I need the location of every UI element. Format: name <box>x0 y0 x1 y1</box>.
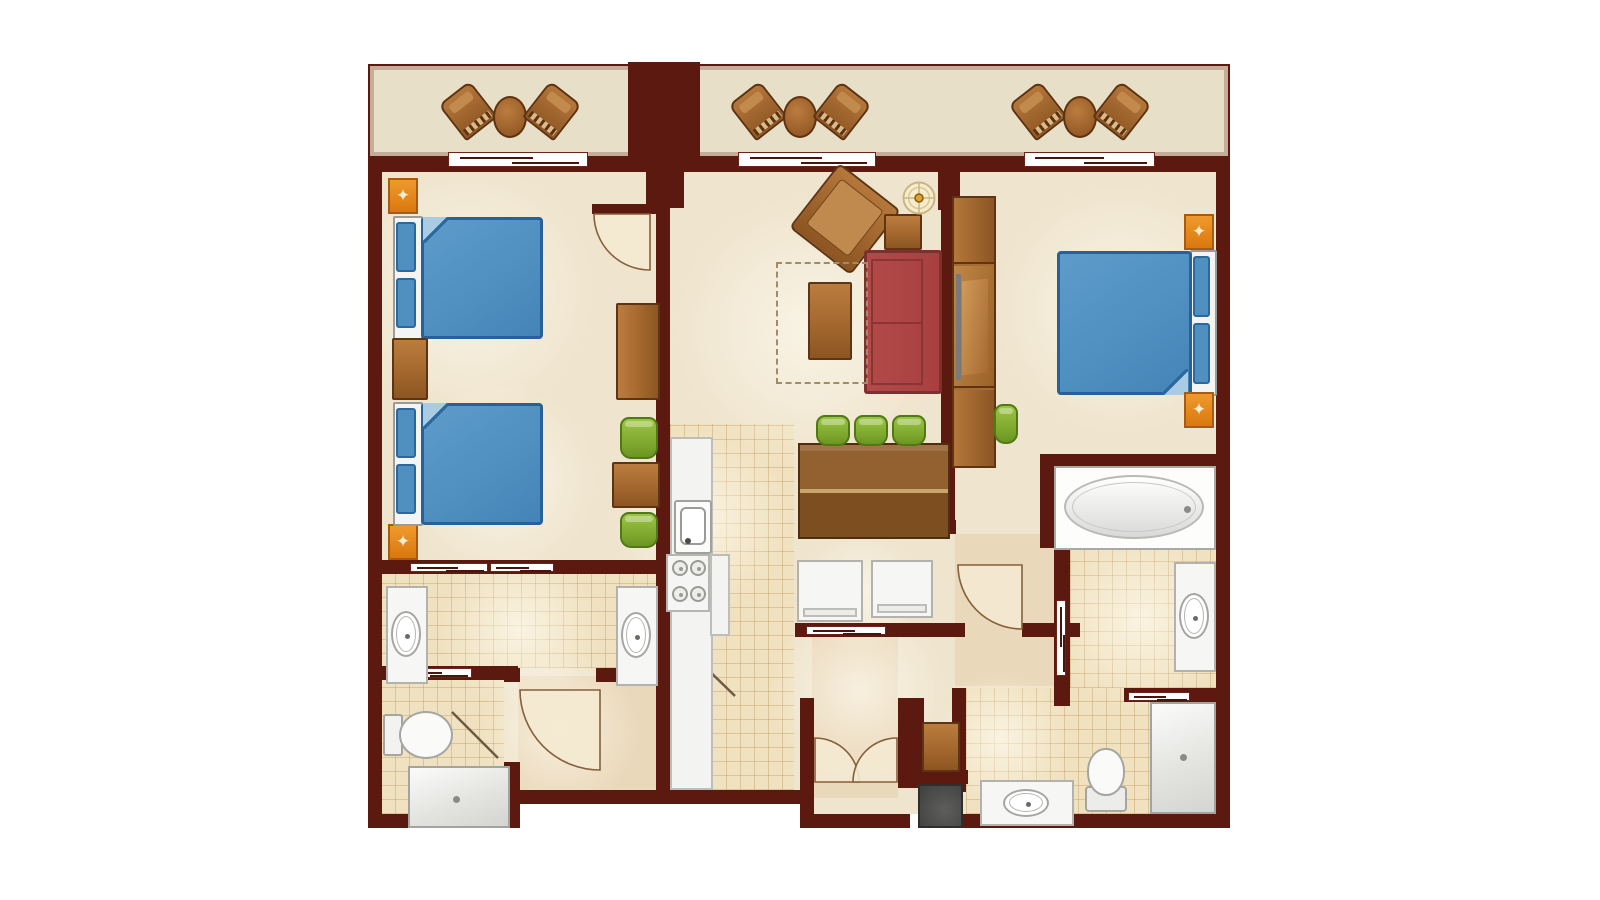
bedroom1-door-swing <box>594 214 650 270</box>
utility-closet <box>918 784 963 828</box>
cafe-table <box>612 462 660 508</box>
sink-drain <box>405 634 410 639</box>
bath1-toilet <box>383 710 455 760</box>
kitchen-sink <box>674 500 712 554</box>
tub-inner-ring <box>1072 482 1196 532</box>
toilet-bowl <box>399 711 453 759</box>
stove-burner <box>672 586 688 602</box>
compass-star-icon: ✦ <box>390 180 416 212</box>
bed-pillow <box>396 408 416 458</box>
compass-star-icon: ✦ <box>1186 216 1212 248</box>
sink-drain <box>635 635 640 640</box>
bed-pillow <box>1193 323 1210 384</box>
dining-chair-1 <box>816 415 850 446</box>
bed-pillow <box>396 278 416 328</box>
bath2-shower <box>1150 702 1216 814</box>
burner-center <box>697 593 701 597</box>
dining-chair-3 <box>892 415 926 446</box>
kitchen-counter <box>670 437 713 790</box>
chair-back <box>835 90 862 114</box>
bedroom2-nightstand-top: ✦ <box>1184 214 1214 250</box>
desk-strip <box>956 274 961 380</box>
compass-star-icon: ✦ <box>1186 394 1212 426</box>
burner-center <box>697 567 701 571</box>
cafe-chair-2 <box>620 512 658 548</box>
balcony-table-1 <box>493 96 527 138</box>
washer <box>797 560 863 622</box>
sink-drain <box>1193 616 1198 621</box>
bath1-shower <box>408 766 510 828</box>
floor-plan-canvas: ✦✦ ✦✦ <box>0 0 1600 900</box>
living-sleeper-sofa <box>864 250 942 394</box>
toilet-room-door-leaf <box>452 712 498 758</box>
compass-medallion-icon <box>902 181 936 215</box>
bedroom1-queen-bed-1 <box>393 216 545 340</box>
bedroom2-wardrobe-desk <box>952 196 996 468</box>
entry-door-right-swing <box>853 738 897 782</box>
chair-back <box>448 90 475 114</box>
chair-highlight <box>625 516 653 522</box>
bed-sheet-fold <box>423 217 449 243</box>
bed-pillow <box>396 222 416 272</box>
living-side-table <box>884 214 922 250</box>
bed-pillow <box>396 464 416 514</box>
bed-pillow <box>1193 256 1210 317</box>
bedroom2-nightstand-bottom: ✦ <box>1184 392 1214 428</box>
chair-highlight <box>859 419 883 425</box>
compass-star-icon: ✦ <box>390 526 416 558</box>
armchair-cushion <box>806 178 884 257</box>
chair-highlight <box>625 421 653 427</box>
shower-drain <box>1180 754 1187 761</box>
bath2-vanity-lower <box>980 780 1074 826</box>
dining-chair-2 <box>854 415 888 446</box>
appliance-door <box>803 608 857 617</box>
chair-highlight <box>821 419 845 425</box>
bath1-vanity-left <box>386 586 428 684</box>
chair-highlight <box>999 408 1013 414</box>
entry-cabinet <box>922 722 960 772</box>
wardrobe-upper <box>954 198 994 264</box>
chair-back <box>1115 90 1142 114</box>
dining-table <box>798 443 950 539</box>
bath1-vanity-right <box>616 586 658 686</box>
dryer <box>871 560 933 618</box>
bedroom2-king-bed <box>1055 250 1217 396</box>
appliance-door <box>877 604 927 613</box>
closet-door-swing <box>520 690 600 770</box>
balcony-table-2 <box>783 96 817 138</box>
shower-drain <box>453 796 460 803</box>
floor-plan: ✦✦ ✦✦ <box>0 0 1600 900</box>
bedroom1-lamp-table-bottom: ✦ <box>388 524 418 560</box>
sink-basin <box>680 507 706 545</box>
balcony-table-3 <box>1063 96 1097 138</box>
toilet-bowl <box>1087 748 1125 796</box>
bedroom1-lamp-table-top: ✦ <box>388 178 418 214</box>
cafe-chair-1 <box>620 417 658 459</box>
bedroom1-nightstand <box>392 338 428 400</box>
entry-door-left-swing <box>815 738 859 782</box>
chair-back <box>738 90 765 114</box>
sink-drain <box>1026 802 1031 807</box>
bed-sheet-fold <box>423 403 449 429</box>
bedroom2-hall-door-swing <box>958 565 1022 629</box>
bath2-soaking-tub <box>1054 466 1216 550</box>
tub-drain <box>1184 506 1191 513</box>
wardrobe-lower <box>954 390 994 466</box>
kitchen-counter-wing <box>710 554 730 636</box>
chair-back <box>545 90 572 114</box>
bedroom2-desk-stool <box>994 404 1018 444</box>
living-compass-table <box>902 181 936 215</box>
living-coffee-table <box>808 282 852 360</box>
sink-faucet <box>685 538 691 544</box>
burner-center <box>679 593 683 597</box>
bedroom1-tv-dresser <box>616 303 660 400</box>
stove-burner <box>672 560 688 576</box>
kitchen-stove <box>666 554 710 612</box>
burner-center <box>679 567 683 571</box>
bath2-toilet <box>1084 748 1130 814</box>
chair-highlight <box>897 419 921 425</box>
bath2-vanity-upper <box>1174 562 1216 672</box>
chair-back <box>1018 90 1045 114</box>
desk-panel <box>962 279 988 376</box>
stove-burner <box>690 560 706 576</box>
sofa-cushion-divider <box>871 322 923 324</box>
stove-burner <box>690 586 706 602</box>
bedroom1-queen-bed-2 <box>393 402 545 526</box>
